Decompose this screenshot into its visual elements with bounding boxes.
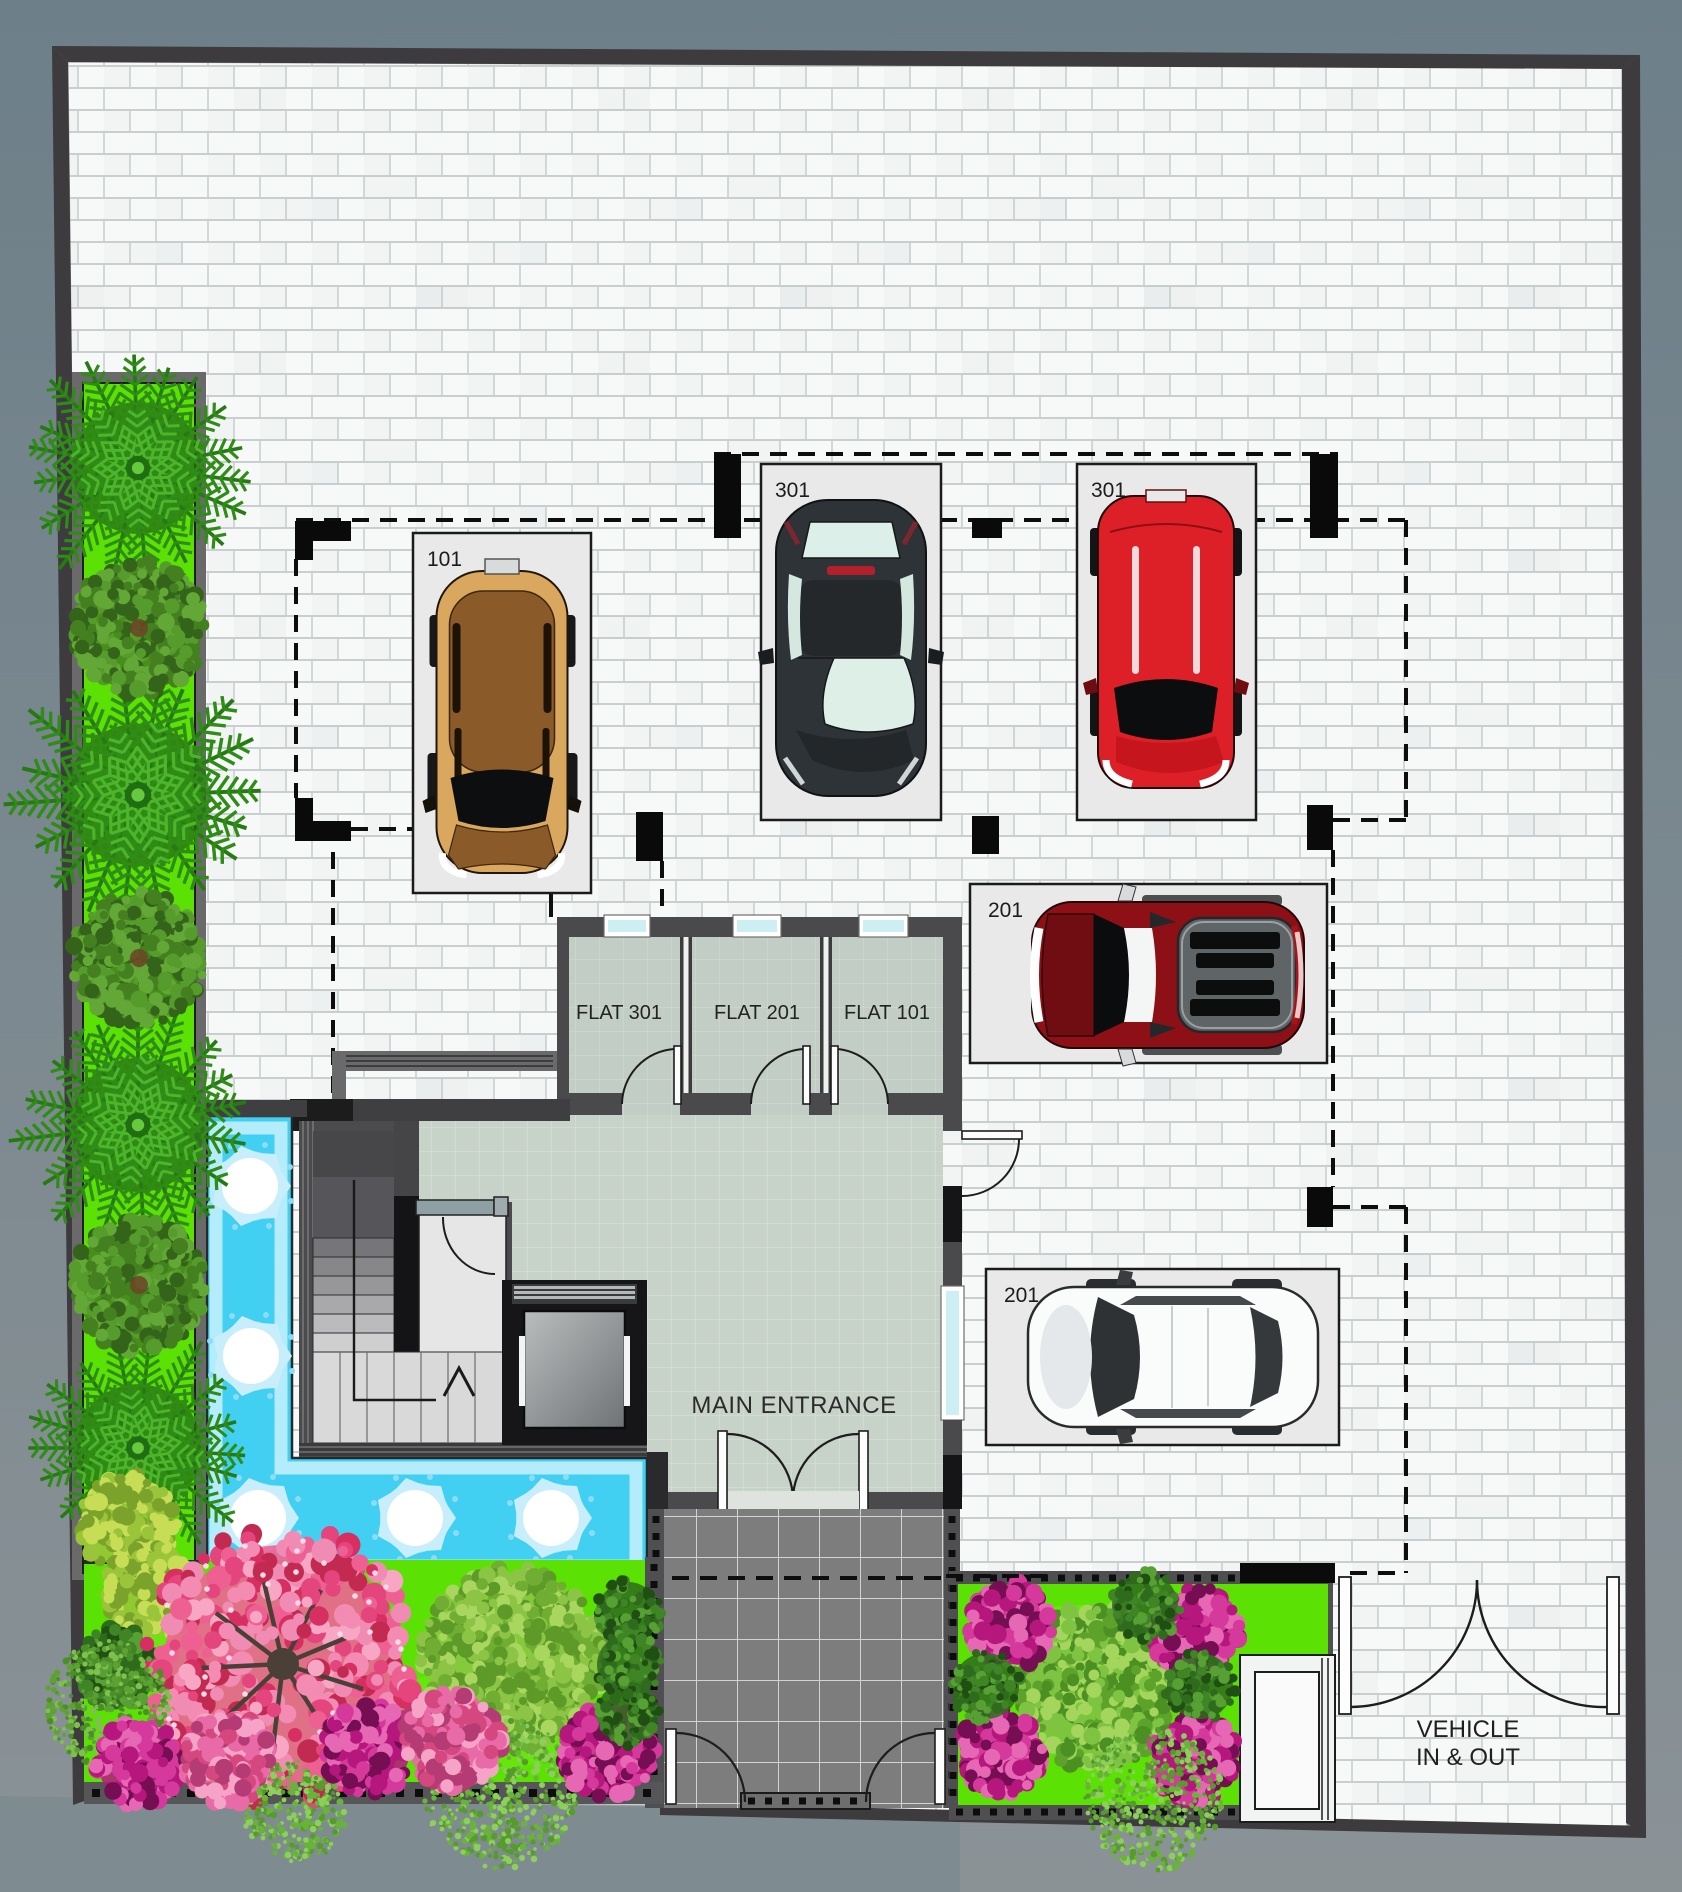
svg-text:MAIN ENTRANCE: MAIN ENTRANCE <box>691 1392 896 1419</box>
svg-text:FLAT 101: FLAT 101 <box>844 1002 930 1024</box>
svg-text:101: 101 <box>427 548 462 571</box>
svg-text:FLAT 201: FLAT 201 <box>714 1002 800 1024</box>
svg-text:301: 301 <box>775 479 810 502</box>
svg-text:201: 201 <box>988 899 1023 922</box>
svg-text:201: 201 <box>1004 1284 1039 1307</box>
svg-text:FLAT 301: FLAT 301 <box>576 1002 662 1024</box>
